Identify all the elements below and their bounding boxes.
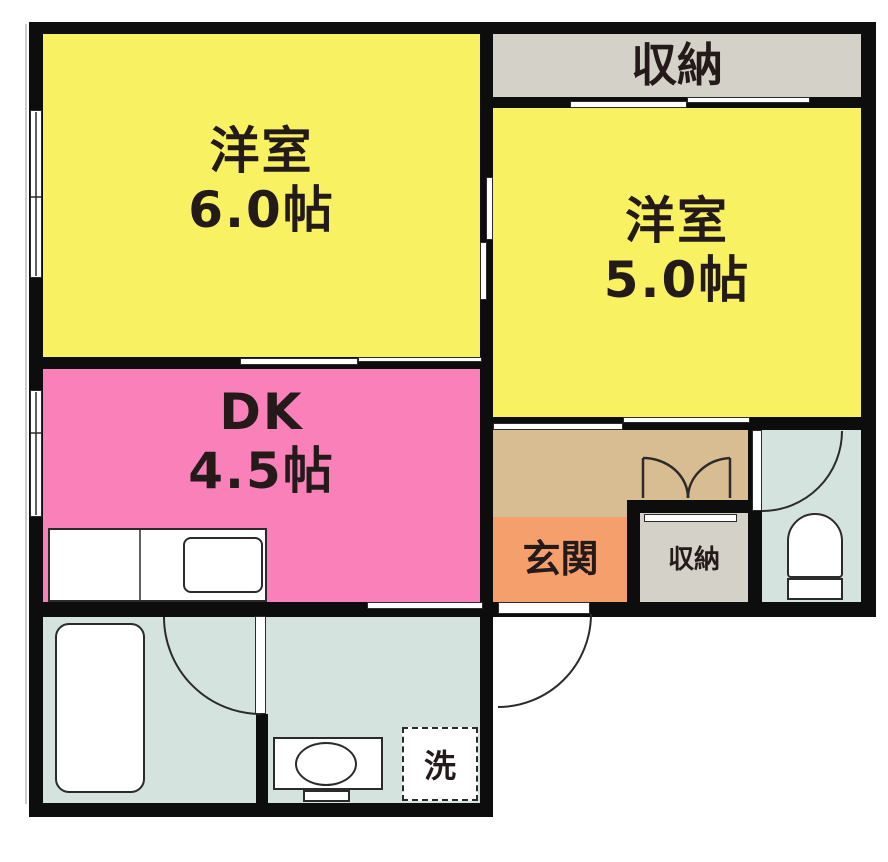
window-dk [30, 390, 42, 517]
closet-hall-top-wall [627, 500, 753, 513]
kitchen-sink [183, 537, 263, 593]
bathtub [55, 623, 145, 793]
room5-size: 5.0帖 [493, 251, 861, 310]
sliding-door-room6-dk-b [358, 357, 482, 362]
sliding-door-room6-room5-a [486, 177, 493, 240]
exterior-trim-line [25, 24, 27, 804]
room6-name: 洋室 [43, 122, 480, 181]
washer-pan: 洗 [402, 727, 478, 801]
genkan-label: 玄関 [493, 517, 628, 602]
sliding-door-closet-top-a [570, 101, 687, 108]
closet-hall-label: 収納 [640, 513, 748, 602]
closet-hall-left-wall [627, 513, 640, 602]
floor-plan: 洗 洋室 6.0帖 洋室 5.0帖 [0, 0, 888, 862]
vanity-basin [295, 742, 357, 786]
sliding-door-room5-hall-a [493, 423, 623, 430]
sliding-door-room6-dk-a [240, 358, 358, 365]
dk-name: DK [43, 383, 480, 442]
sliding-door-closet-top-b [687, 97, 810, 103]
toilet-door-leaf [752, 430, 762, 511]
washer-pan-label: 洗 [424, 741, 456, 787]
entrance-door-leaf [498, 602, 590, 614]
sliding-door-room6-room5-b [480, 242, 487, 300]
room6-label: 洋室 6.0帖 [43, 122, 480, 240]
bath-door-leaf [255, 616, 266, 714]
closet-top-label: 収納 [493, 34, 861, 97]
bath-partition-wall [256, 714, 268, 803]
dk-label: DK 4.5帖 [43, 383, 480, 501]
dk-size: 4.5帖 [43, 442, 480, 501]
vanity-base [303, 790, 350, 802]
toilet-bowl [787, 513, 843, 578]
sliding-door-room5-hall-b [623, 417, 750, 423]
room5-label: 洋室 5.0帖 [493, 192, 861, 310]
window-room6 [30, 110, 42, 278]
room6-size: 6.0帖 [43, 181, 480, 240]
room5-name: 洋室 [493, 192, 861, 251]
toilet-tank [787, 578, 843, 600]
sliding-door-dk-washroom [367, 602, 483, 609]
entrance-door-arc [498, 614, 591, 707]
